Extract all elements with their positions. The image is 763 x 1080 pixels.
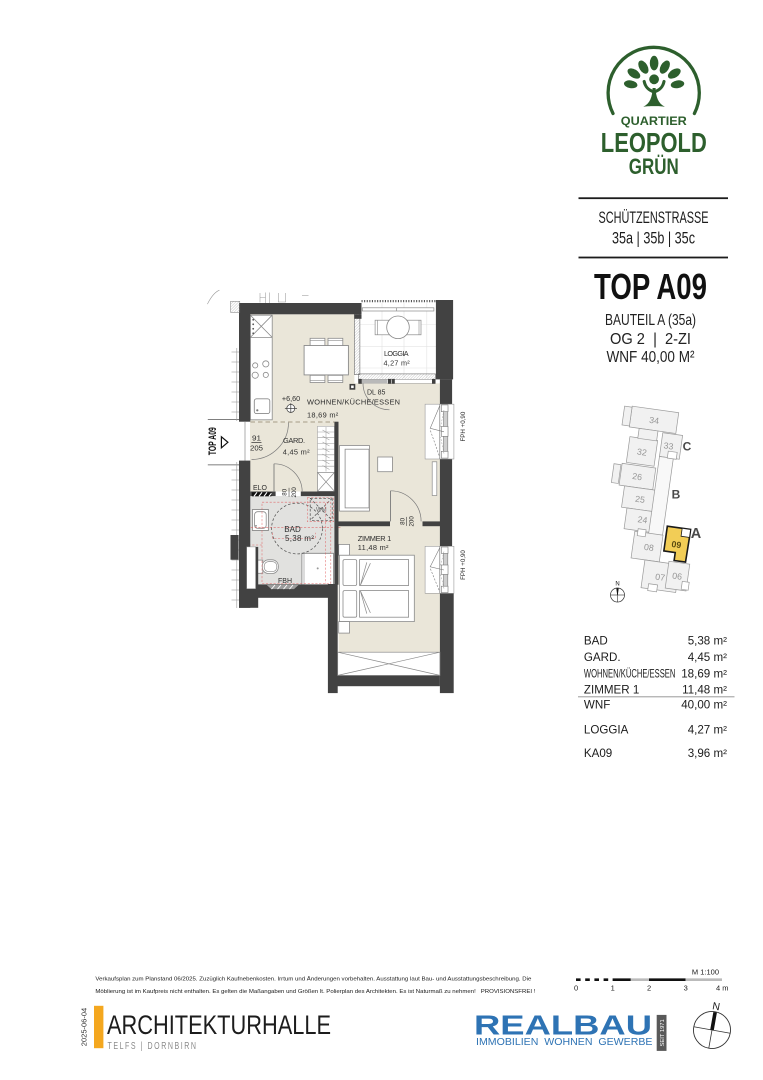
- svg-text:TOP A09: TOP A09: [594, 266, 707, 307]
- svg-text:TELFS | DORNBIRN: TELFS | DORNBIRN: [108, 1041, 198, 1052]
- svg-text:11,48 m²: 11,48 m²: [682, 684, 727, 697]
- svg-text:4,27 m²: 4,27 m²: [688, 724, 727, 737]
- svg-text:C: C: [683, 440, 692, 454]
- svg-text:M 1:100: M 1:100: [692, 968, 719, 977]
- svg-text:11,48 m²: 11,48 m²: [358, 543, 389, 552]
- svg-text:33: 33: [663, 440, 674, 451]
- svg-text:3: 3: [684, 984, 688, 993]
- svg-text:GRÜN: GRÜN: [629, 154, 679, 179]
- svg-text:5,38 m²: 5,38 m²: [688, 635, 727, 648]
- svg-text:4,27 m²: 4,27 m²: [384, 359, 411, 368]
- svg-text:GARD.: GARD.: [283, 436, 305, 445]
- svg-text:1: 1: [611, 984, 615, 993]
- svg-text:2: 2: [647, 984, 651, 993]
- svg-text:BAUTEIL A (35a): BAUTEIL A (35a): [605, 312, 696, 329]
- svg-text:ARCHITEKTURHALLE: ARCHITEKTURHALLE: [107, 1010, 331, 1040]
- svg-text:ELO: ELO: [253, 485, 268, 492]
- svg-text:ZIMMER 1: ZIMMER 1: [358, 534, 392, 543]
- svg-text:5,38 m²: 5,38 m²: [285, 534, 314, 543]
- svg-text:0: 0: [574, 984, 578, 993]
- svg-text:BAD: BAD: [584, 635, 608, 648]
- svg-text:REALBAU: REALBAU: [474, 1010, 652, 1041]
- svg-text:KA09: KA09: [584, 747, 612, 760]
- svg-text:FBH: FBH: [278, 578, 292, 585]
- svg-text:BAD: BAD: [284, 525, 301, 534]
- svg-text:25: 25: [634, 494, 645, 505]
- svg-text:4,45 m²: 4,45 m²: [283, 448, 310, 457]
- svg-text:07: 07: [655, 572, 666, 583]
- svg-text:3,96 m²: 3,96 m²: [688, 747, 727, 760]
- svg-text:18,69 m²: 18,69 m²: [681, 668, 727, 681]
- svg-text:205: 205: [250, 443, 263, 452]
- svg-text:26: 26: [632, 471, 643, 482]
- svg-text:WNF 40,00 M²: WNF 40,00 M²: [607, 349, 696, 366]
- svg-text:GARD.: GARD.: [584, 651, 621, 664]
- svg-text:+6,60: +6,60: [282, 394, 300, 403]
- svg-text:Verkaufsplan zum Planstand 06/: Verkaufsplan zum Planstand 06/2025. Zuzü…: [95, 976, 532, 983]
- svg-text:91: 91: [252, 433, 261, 442]
- svg-text:LOGGIA: LOGGIA: [384, 349, 409, 358]
- svg-text:TOP A09: TOP A09: [207, 427, 219, 455]
- svg-text:Möblierung ist im Kaufpreis ni: Möblierung ist im Kaufpreis nicht enthal…: [95, 989, 535, 995]
- svg-text:FPH +0,90: FPH +0,90: [460, 550, 467, 580]
- svg-text:200: 200: [409, 516, 416, 527]
- svg-text:35a | 35b | 35c: 35a | 35b | 35c: [612, 230, 695, 248]
- svg-text:SEIT 1971: SEIT 1971: [660, 1019, 666, 1046]
- svg-text:2025-06-04: 2025-06-04: [80, 1008, 89, 1046]
- svg-text:4 m: 4 m: [716, 984, 729, 993]
- svg-text:WOHNEN/KÜCHE/ESSEN: WOHNEN/KÜCHE/ESSEN: [307, 398, 400, 407]
- svg-text:18,69 m²: 18,69 m²: [307, 411, 339, 420]
- svg-text:LOGGIA: LOGGIA: [584, 724, 629, 737]
- svg-text:80: 80: [282, 488, 289, 495]
- svg-text:34: 34: [649, 415, 660, 426]
- svg-text:WM: WM: [316, 508, 327, 514]
- svg-text:08: 08: [643, 542, 654, 553]
- svg-text:24: 24: [637, 514, 648, 525]
- svg-text:WNF: WNF: [584, 699, 610, 712]
- svg-text:A: A: [691, 526, 702, 542]
- svg-text:4,45 m²: 4,45 m²: [688, 651, 727, 664]
- svg-text:200: 200: [291, 487, 298, 498]
- svg-text:WOHNEN/KÜCHE/ESSEN: WOHNEN/KÜCHE/ESSEN: [584, 668, 676, 681]
- svg-text:80: 80: [399, 517, 406, 524]
- svg-text:SCHÜTZENSTRASSE: SCHÜTZENSTRASSE: [599, 209, 709, 227]
- svg-text:IMMOBILIEN WOHNEN GEWERBE: IMMOBILIEN WOHNEN GEWERBE: [476, 1037, 653, 1048]
- svg-text:OG 2 | 2-ZI: OG 2 | 2-ZI: [610, 331, 691, 348]
- svg-text:40,00 m²: 40,00 m²: [681, 699, 727, 712]
- svg-text:09: 09: [671, 539, 682, 550]
- svg-text:32: 32: [636, 447, 647, 458]
- svg-text:N: N: [615, 582, 619, 588]
- svg-text:06: 06: [672, 571, 683, 582]
- svg-text:FPH +0,90: FPH +0,90: [460, 411, 467, 441]
- svg-text:ZIMMER 1: ZIMMER 1: [584, 684, 639, 697]
- svg-text:B: B: [672, 488, 681, 502]
- svg-text:DL 85: DL 85: [367, 389, 386, 396]
